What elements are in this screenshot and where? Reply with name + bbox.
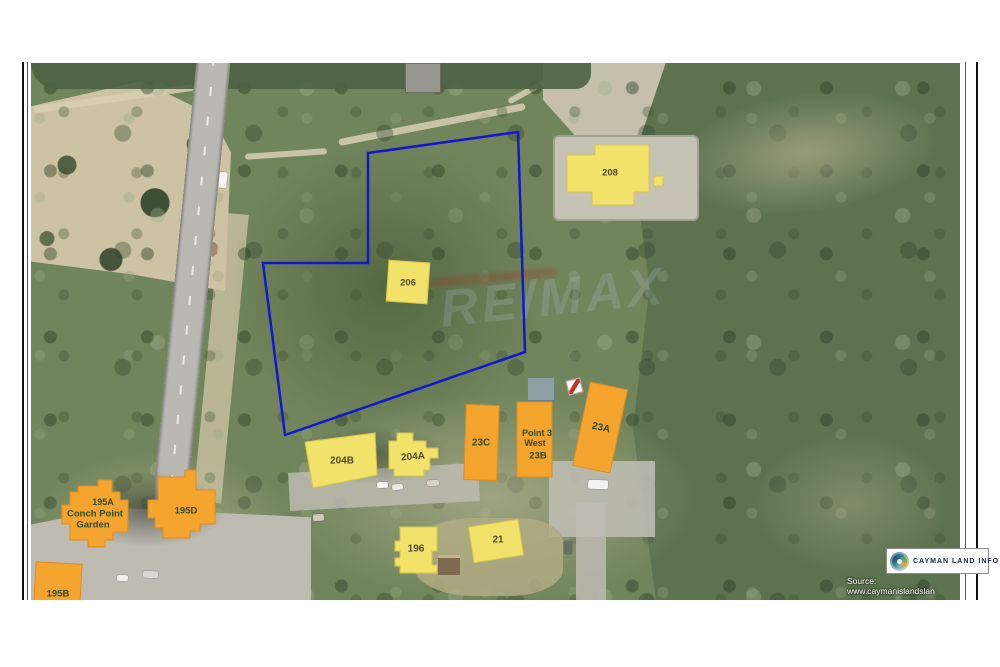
parcel-label-208: 208 [602,168,618,179]
cayman-land-info-emblem-icon [890,552,909,571]
parcel-label-23B-line3: 23B [529,451,546,462]
parcel-label-195A-line2: Conch Point [67,509,123,520]
parcel-label-195A-line1: 195A [92,497,114,507]
aerial-map-canvas[interactable]: RE/MAX 208 206 204B 204A 23C Point 3 Wes… [31,63,960,600]
frame-left-thin-line [27,62,28,600]
parcel-label-195B: 195B [47,589,70,600]
parcel-label-23B-line2: West [524,438,545,448]
parcel-label-196: 196 [408,544,425,555]
frame-right-thick-line [976,62,978,600]
frame-right-thin-line [965,62,966,600]
parcel-label-195D: 195D [175,506,198,517]
parcel-label-204A: 204A [401,451,426,464]
parcel-label-195A-line3: Garden [76,520,109,531]
frame-left-thick-line [22,62,24,600]
cayman-land-info-logo-text: CAYMAN LAND INFO [913,558,999,565]
parcel-label-23B-line1: Point 3 [522,428,552,438]
parcel-label-206: 206 [400,278,416,289]
cayman-land-info-logo: CAYMAN LAND INFO [886,548,989,574]
parcel-208-annex[interactable] [654,176,663,186]
parcel-label-21: 21 [492,535,503,546]
parcel-label-204B: 204B [330,456,354,467]
parcel-layer [31,63,960,600]
parcel-195D[interactable] [148,470,215,538]
source-attribution: Source: www.caymanislandslan [847,576,960,596]
parcel-label-23C: 23C [472,438,490,449]
